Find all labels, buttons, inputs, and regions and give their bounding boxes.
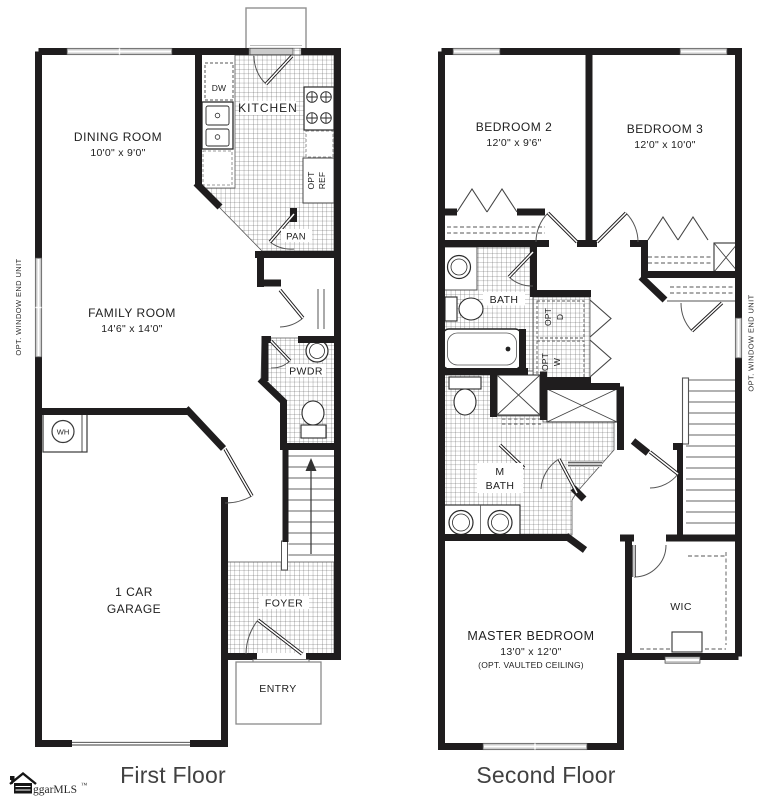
bedroom2-door-arc xyxy=(536,213,548,242)
stair-rail xyxy=(683,378,689,444)
bedroom3-door-arc xyxy=(626,213,638,242)
garage-label-2: GARAGE xyxy=(107,602,161,616)
bedroom3-dims: 12'0" x 10'0" xyxy=(634,139,696,151)
towel-bar xyxy=(568,461,602,467)
master-bedroom-label: MASTER BEDROOM xyxy=(467,629,594,643)
bedroom3-label: BEDROOM 3 xyxy=(627,122,704,136)
second-floor-title: Second Floor xyxy=(476,762,615,788)
mls-watermark: ggarMLS ™ xyxy=(10,774,88,797)
garage-door-arc xyxy=(225,496,252,503)
first-floor-stairs xyxy=(282,456,335,570)
dishwasher xyxy=(205,63,233,100)
mbath-label-1: M xyxy=(495,466,504,478)
family-room-dims: 14'6" x 14'0" xyxy=(101,323,163,335)
opt-d-label-2: D xyxy=(555,314,565,320)
kitchen-label: KITCHEN xyxy=(238,101,298,115)
second-floor-side-note: OPT. WINDOW END UNIT xyxy=(747,294,756,391)
kitchen-bay-window xyxy=(250,48,293,54)
laundry-bifold xyxy=(590,300,611,377)
mbath-toilet-bowl xyxy=(454,389,476,415)
bath-label: BATH xyxy=(490,294,519,306)
dining-room-label: DINING ROOM xyxy=(74,130,162,144)
garage-door-opening xyxy=(72,740,190,747)
hall-closet-shelf xyxy=(670,287,734,293)
bedroom2-dims: 12'0" x 9'6" xyxy=(486,137,541,149)
hall-closet xyxy=(318,289,324,329)
bath-toilet-bowl xyxy=(459,298,483,320)
first-floor-title: First Floor xyxy=(120,762,226,788)
master-door-arc xyxy=(650,474,678,488)
garage-label-1: 1 CAR xyxy=(115,585,153,599)
powder-label: PWDR xyxy=(289,366,323,378)
wic-door-arc xyxy=(634,545,666,577)
floor-plan-page: DINING ROOM 10'0" x 9'0" KITCHEN DW OPT … xyxy=(0,0,775,800)
bedroom3-closet-bifold xyxy=(648,217,708,240)
front-door-opening xyxy=(257,653,306,660)
watermark-tm: ™ xyxy=(81,782,88,789)
first-floor-plan: DINING ROOM 10'0" x 9'0" KITCHEN DW OPT … xyxy=(14,8,341,788)
opt-ref-label-1: OPT xyxy=(306,171,316,189)
pantry-label: PAN xyxy=(286,232,306,243)
entry-label: ENTRY xyxy=(259,683,296,695)
mbath-toilet-tank xyxy=(449,377,481,389)
powder-toilet-tank xyxy=(301,425,326,438)
second-floor-stairs xyxy=(683,378,738,523)
watermark-text: ggarMLS xyxy=(33,784,77,796)
first-floor-side-note: OPT. WINDOW END UNIT xyxy=(14,258,23,355)
opt-d-label-1: OPT xyxy=(543,308,553,326)
sink-drain-2 xyxy=(215,135,220,140)
bedroom2-closet-bifold xyxy=(457,189,517,212)
master-bedroom-dims: 13'0" x 12'0" xyxy=(500,646,562,658)
water-heater-label: WH xyxy=(57,428,70,437)
hall-closet-door-arc xyxy=(681,303,692,331)
family-room-label: FAMILY ROOM xyxy=(88,306,176,320)
opt-ref-label-2: REF xyxy=(317,172,327,190)
wic-label: WIC xyxy=(670,601,692,613)
counter-below-stove xyxy=(306,131,333,157)
floor-plan-drawing: DINING ROOM 10'0" x 9'0" KITCHEN DW OPT … xyxy=(0,0,775,800)
bedroom3-closet-shelf xyxy=(648,257,711,263)
sink-drain-1 xyxy=(215,113,220,118)
bedroom2-closet-shelf xyxy=(447,227,545,233)
powder-toilet-bowl xyxy=(302,401,324,425)
mbath-label-2: BATH xyxy=(486,480,515,492)
dining-room-dims: 10'0" x 9'0" xyxy=(90,147,145,159)
second-floor-plan: BEDROOM 2 12'0" x 9'6" BEDROOM 3 12'0" x… xyxy=(438,48,756,788)
bathtub-drain xyxy=(506,347,511,352)
opt-w-label-1: OPT xyxy=(540,353,550,371)
powder-sink-bowl xyxy=(310,344,325,359)
foyer-label: FOYER xyxy=(265,598,303,610)
stair-newel xyxy=(282,541,288,570)
stairs-up-arrow-head xyxy=(306,458,317,471)
lower-cabinet-dashed xyxy=(203,151,232,185)
wic-bench xyxy=(672,632,702,652)
kitchen-bay-bumpout xyxy=(246,8,306,49)
master-bedroom-note: (OPT. VAULTED CEILING) xyxy=(478,660,584,670)
bath-toilet-tank xyxy=(445,297,457,321)
bedroom2-label: BEDROOM 2 xyxy=(476,120,553,134)
opt-w-label-2: W xyxy=(552,358,562,366)
hall-door-arc xyxy=(280,318,303,327)
dishwasher-label: DW xyxy=(212,83,227,93)
